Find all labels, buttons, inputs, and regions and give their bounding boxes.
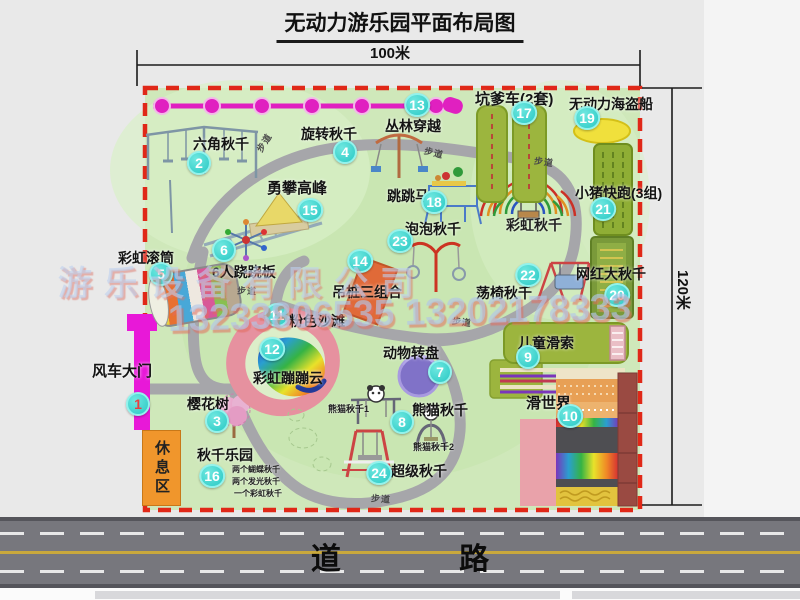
attraction-label-16: 秋千乐园: [197, 445, 253, 465]
walkway-label: 步道: [237, 283, 258, 297]
attraction-badge-20: 20: [604, 283, 630, 307]
attraction-badge-3: 3: [205, 409, 229, 433]
attraction-badge-2: 2: [187, 151, 211, 175]
bottom-strip-block-right: [572, 591, 800, 599]
attraction-badge-24: 24: [366, 461, 392, 485]
attraction-label-13: 丛林穿越: [385, 116, 441, 136]
rest-area: 休息区: [142, 430, 181, 506]
rest-area-label: 休息区: [151, 440, 172, 497]
attraction-badge-14: 14: [347, 249, 373, 273]
attraction-badge-7: 7: [428, 360, 452, 384]
park-plan-page: 无动力游乐园平面布局图 100米 120米 休息区 风车大门1六角秋千2樱花树3…: [0, 0, 800, 600]
attraction-badge-22: 22: [515, 263, 541, 287]
attraction-label-20: 网红大秋千: [576, 264, 646, 284]
road: 道 路: [0, 517, 800, 588]
map-sub-label: 彩虹秋千: [506, 215, 562, 235]
map-sub-label: 熊猫秋千2: [413, 440, 454, 453]
walkway-label: 步道: [451, 314, 473, 330]
map-sub-label: 两个发光秋千: [232, 476, 280, 487]
walkway-label: 步道: [371, 491, 392, 505]
attraction-badge-13: 13: [404, 93, 430, 117]
attraction-label-8: 熊猫秋千: [412, 400, 468, 420]
attraction-badge-11: 11: [265, 303, 290, 327]
road-label: 道 路: [0, 534, 800, 578]
attraction-badge-17: 17: [511, 101, 537, 125]
attraction-badge-18: 18: [421, 190, 447, 214]
map-sub-label: 一个彩虹秋千: [234, 488, 282, 499]
attraction-badge-16: 16: [199, 464, 225, 488]
walkway-label: 步道: [533, 154, 555, 170]
attraction-label-23: 泡泡秋千: [405, 219, 461, 239]
attraction-badge-6: 6: [212, 238, 236, 262]
attraction-label-21: 小猪快跑(3组): [575, 183, 662, 203]
width-dimension-label: 100米: [370, 42, 410, 63]
bottom-strip-block-left: [95, 591, 560, 599]
attraction-badge-8: 8: [390, 410, 414, 434]
attraction-label-6: 6人跷跷板: [212, 262, 276, 282]
attraction-badge-10: 10: [557, 404, 583, 428]
attraction-badge-5: 5: [149, 262, 173, 286]
attraction-badge-12: 12: [259, 337, 285, 361]
map-sub-label: 熊猫秋千1: [328, 402, 369, 415]
attraction-badge-9: 9: [516, 345, 540, 369]
attraction-badge-19: 19: [574, 106, 600, 130]
attraction-label-1: 风车大门: [92, 360, 152, 381]
attraction-badge-1: 1: [126, 392, 150, 416]
attraction-badge-23: 23: [387, 229, 413, 253]
attraction-label-15: 勇攀高峰: [267, 177, 327, 198]
map-sub-label: 两个蝴蝶秋千: [232, 464, 280, 475]
attraction-badge-15: 15: [297, 198, 323, 222]
bottom-strip: [0, 588, 800, 600]
attraction-badge-21: 21: [590, 197, 616, 221]
attraction-label-24: 超级秋千: [391, 461, 447, 481]
attraction-label-11: 粉色沙滩: [289, 311, 345, 331]
attraction-label-7: 动物转盘: [383, 343, 439, 363]
attraction-label-14: 吊桩三组合: [332, 282, 402, 302]
page-title: 无动力游乐园平面布局图: [277, 7, 524, 43]
height-dimension-label: 120米: [673, 270, 694, 310]
attraction-badge-4: 4: [333, 140, 357, 164]
attraction-label-12: 彩虹蹦蹦云: [253, 368, 323, 388]
